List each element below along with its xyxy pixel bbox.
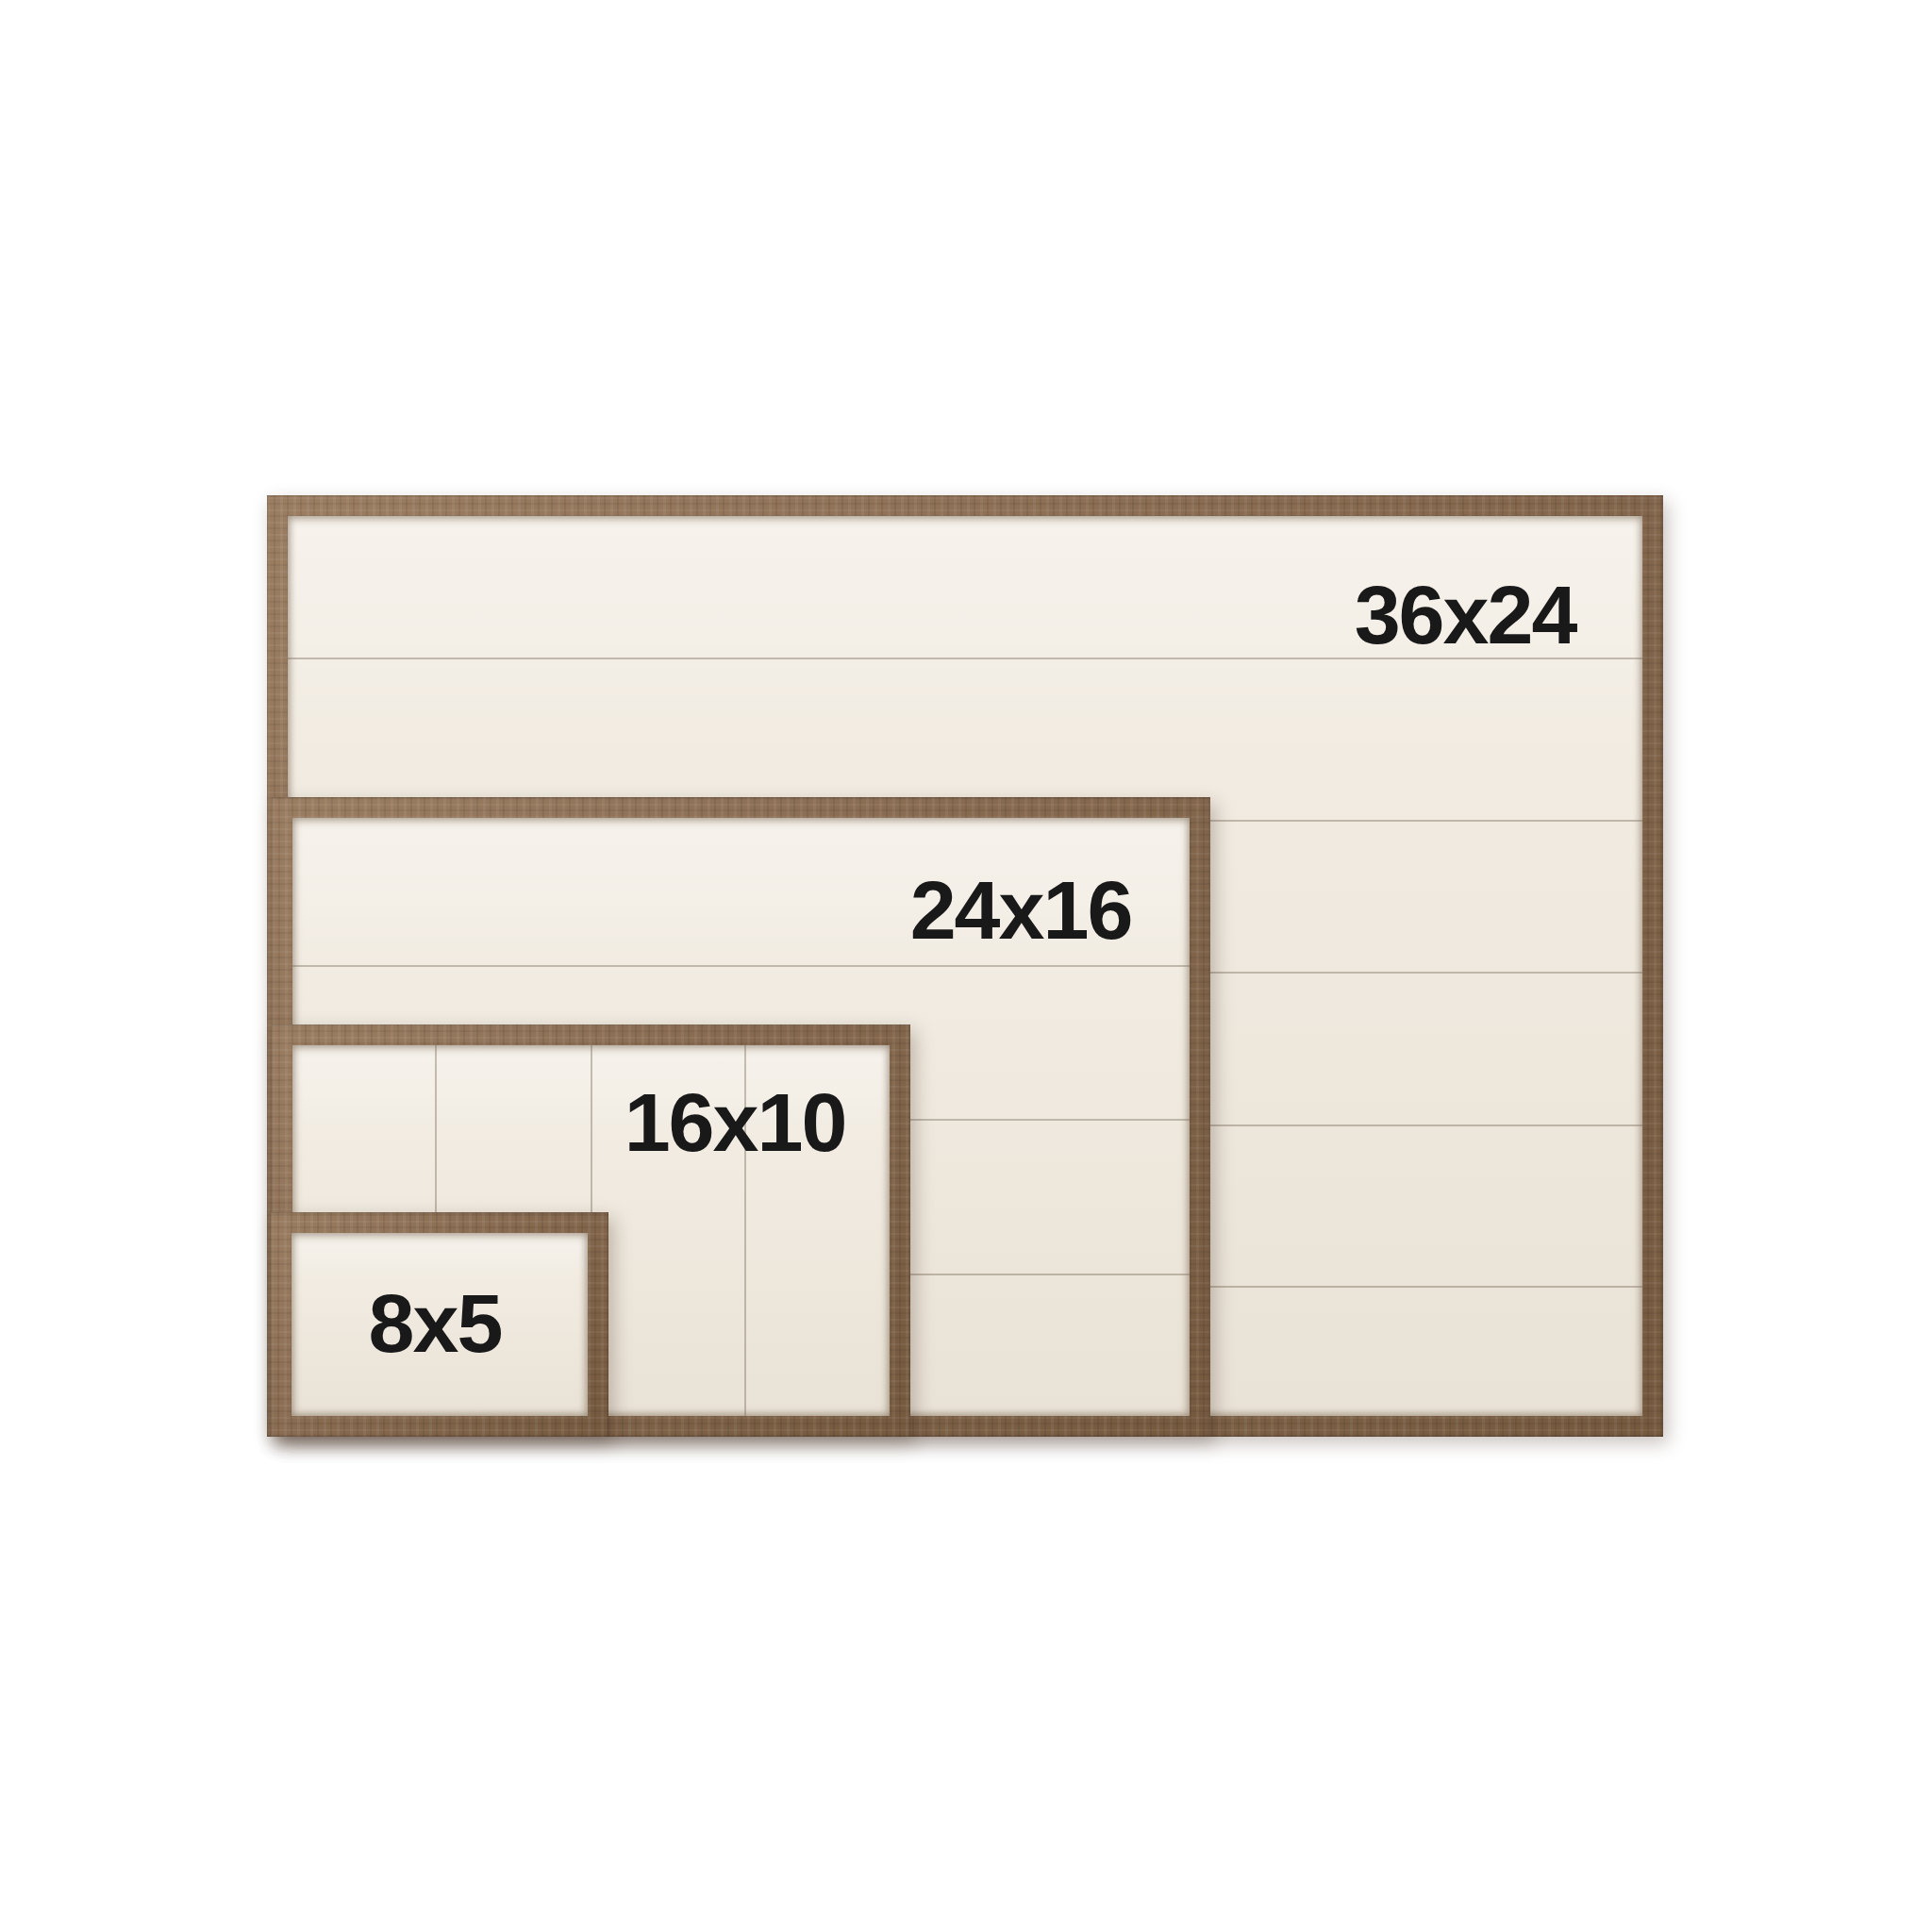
size-label-36x24: 36x24 <box>1355 574 1576 657</box>
plank-groove <box>292 965 1190 967</box>
product-photo: 36x24 24x16 16x10 8x5 <box>0 0 1932 1932</box>
size-label-16x10: 16x10 <box>625 1081 846 1164</box>
size-label-8x5: 8x5 <box>369 1282 502 1365</box>
size-label-24x16: 24x16 <box>910 869 1132 952</box>
